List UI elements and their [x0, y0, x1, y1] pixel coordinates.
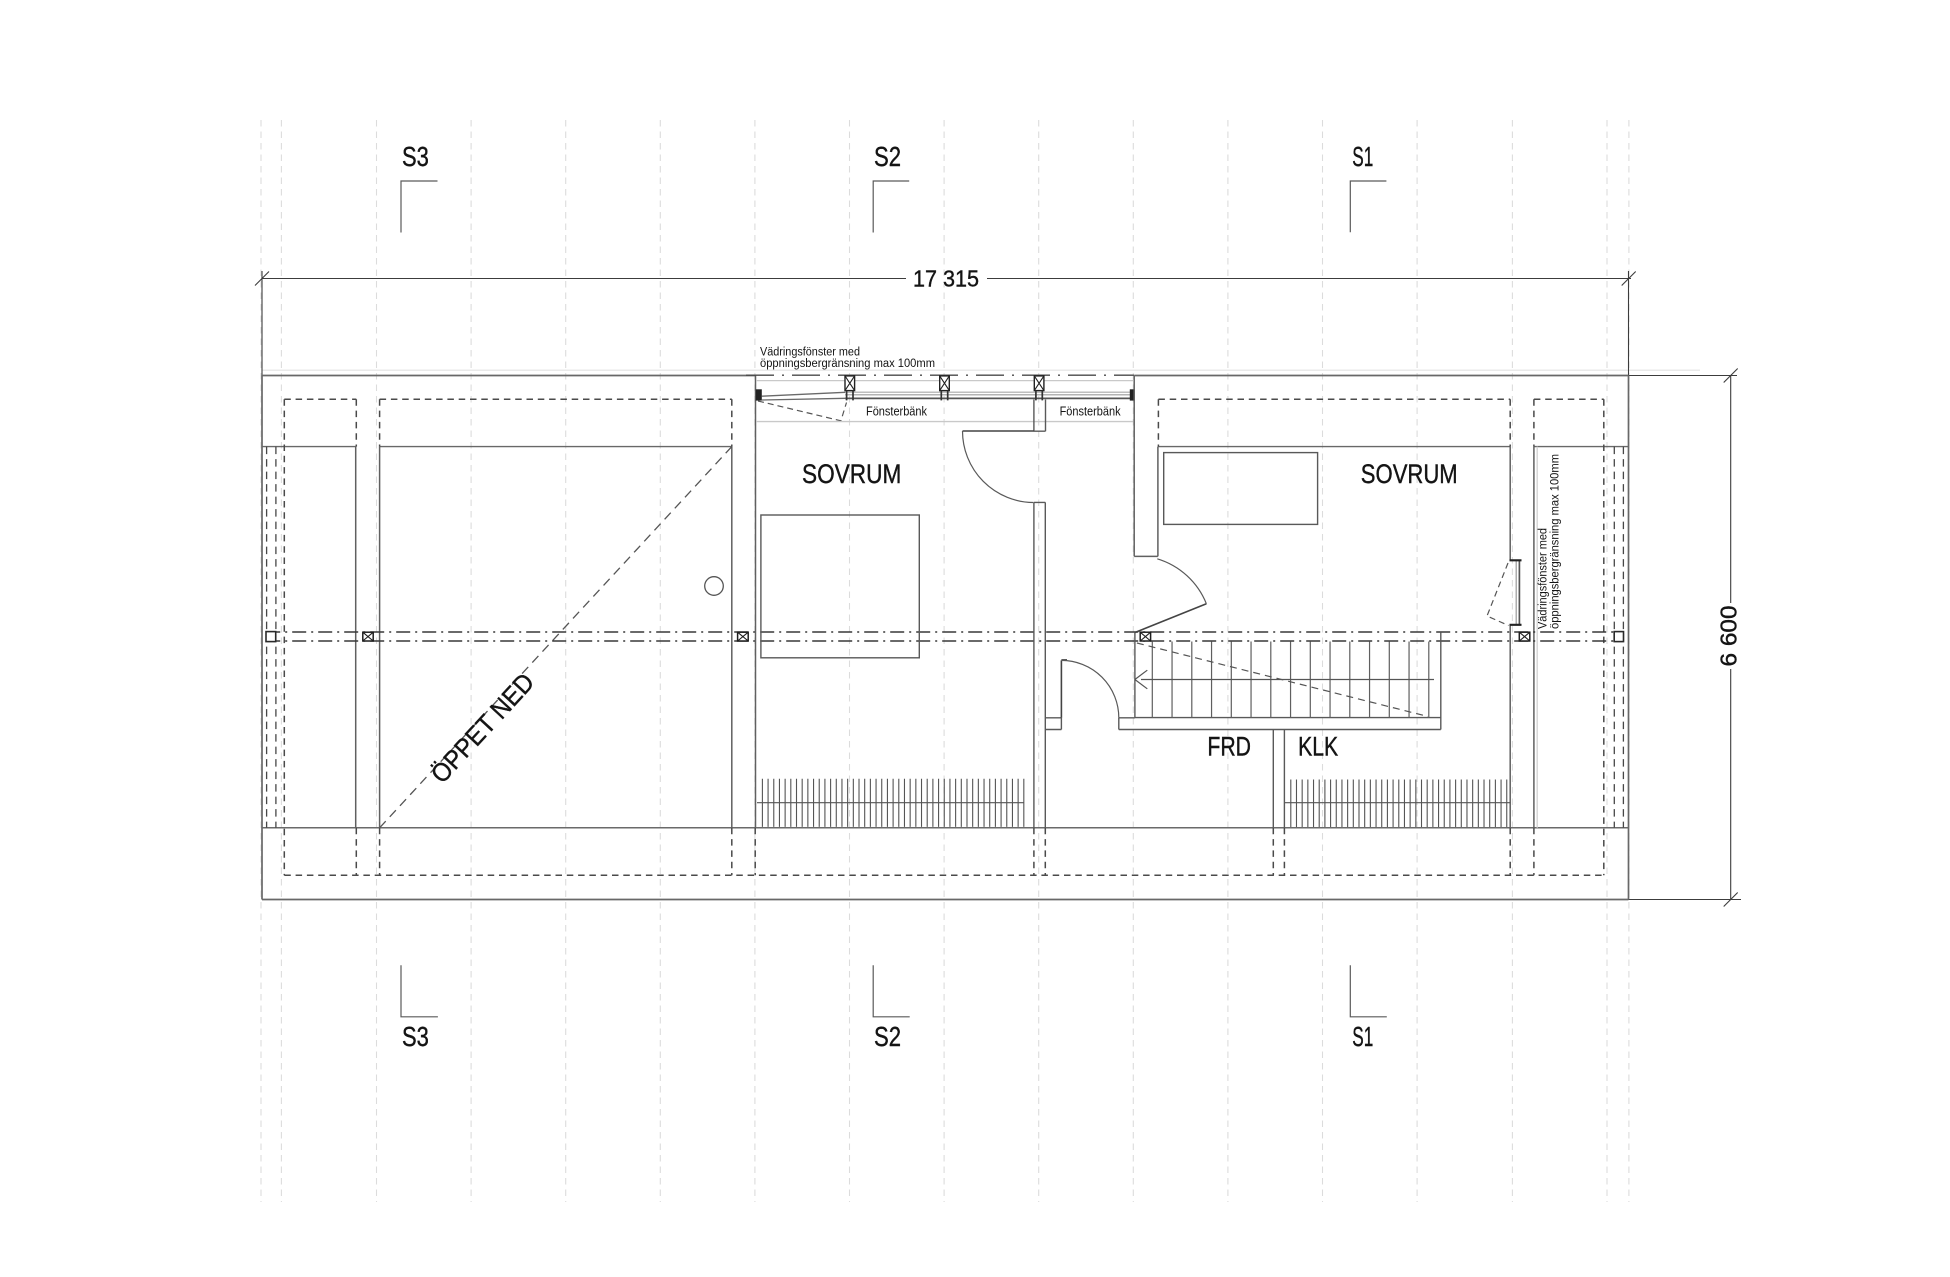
- svg-text:SOVRUM: SOVRUM: [802, 459, 901, 489]
- svg-text:Vädringsfönster med: Vädringsfönster med: [1538, 528, 1550, 629]
- svg-text:Fönsterbänk: Fönsterbänk: [866, 405, 928, 419]
- svg-text:S3: S3: [402, 1021, 429, 1052]
- svg-text:SOVRUM: SOVRUM: [1361, 459, 1458, 489]
- svg-text:S3: S3: [402, 141, 429, 172]
- svg-text:Vädringsfönster med: Vädringsfönster med: [760, 347, 860, 359]
- svg-text:öppningsbergränsning max 100mm: öppningsbergränsning max 100mm: [760, 358, 935, 370]
- svg-text:KLK: KLK: [1298, 732, 1338, 762]
- svg-text:S2: S2: [874, 141, 901, 172]
- svg-text:öppningsbergränsning max 100mm: öppningsbergränsning max 100mm: [1550, 454, 1562, 629]
- svg-text:S1: S1: [1352, 1021, 1373, 1052]
- svg-text:17 315: 17 315: [913, 266, 979, 292]
- svg-text:6 600: 6 600: [1716, 606, 1742, 667]
- svg-text:FRD: FRD: [1207, 732, 1251, 762]
- svg-text:Fönsterbänk: Fönsterbänk: [1060, 405, 1122, 419]
- svg-text:S2: S2: [874, 1021, 901, 1052]
- svg-text:S1: S1: [1352, 141, 1373, 172]
